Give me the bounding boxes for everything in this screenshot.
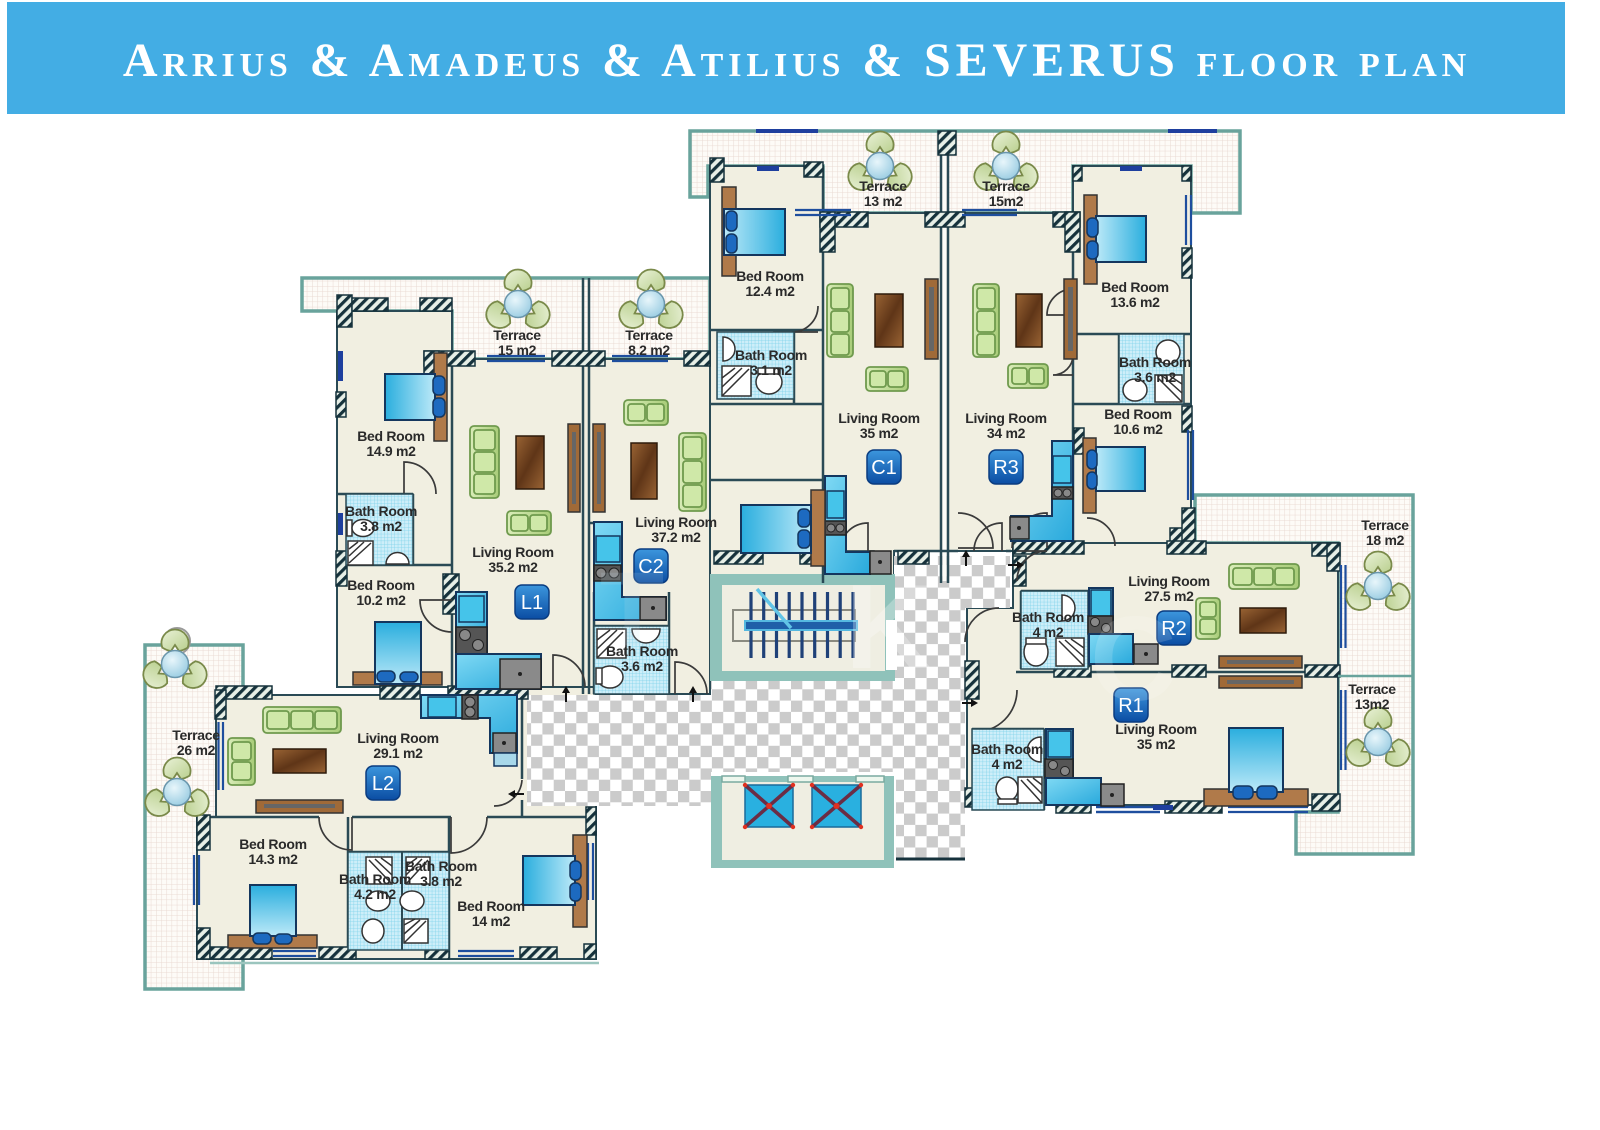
svg-text:Bed Room: Bed Room <box>347 577 415 593</box>
svg-text:34 m2: 34 m2 <box>987 425 1026 441</box>
svg-text:Terrace: Terrace <box>1348 681 1396 697</box>
svg-text:14.3 m2: 14.3 m2 <box>248 851 298 867</box>
svg-text:3.8 m2: 3.8 m2 <box>360 518 402 534</box>
svg-text:C1: C1 <box>871 457 897 479</box>
svg-text:Bed Room: Bed Room <box>239 836 307 852</box>
svg-text:Living Room: Living Room <box>472 544 553 560</box>
svg-text:Terrace: Terrace <box>982 178 1030 194</box>
svg-text:Terrace: Terrace <box>493 327 541 343</box>
svg-text:L1: L1 <box>521 592 543 614</box>
svg-text:Living Room: Living Room <box>838 410 919 426</box>
svg-text:14.9 m2: 14.9 m2 <box>366 443 416 459</box>
svg-text:Bed Room: Bed Room <box>1101 279 1169 295</box>
svg-text:13 m2: 13 m2 <box>864 193 903 209</box>
svg-text:4 m2: 4 m2 <box>992 756 1023 772</box>
svg-text:Bath Room: Bath Room <box>345 503 417 519</box>
svg-text:37.2 m2: 37.2 m2 <box>651 529 701 545</box>
svg-text:3.6 m2: 3.6 m2 <box>1134 369 1176 385</box>
svg-text:18 m2: 18 m2 <box>1366 532 1405 548</box>
svg-text:3.1 m2: 3.1 m2 <box>750 362 792 378</box>
svg-text:Bed Room: Bed Room <box>1104 406 1172 422</box>
svg-text:Bed Room: Bed Room <box>357 428 425 444</box>
svg-text:35.2 m2: 35.2 m2 <box>488 559 538 575</box>
svg-text:26 m2: 26 m2 <box>177 742 216 758</box>
svg-text:Terrace: Terrace <box>1361 517 1409 533</box>
svg-text:K: K <box>845 560 932 694</box>
svg-text:4 m2: 4 m2 <box>1033 624 1064 640</box>
svg-text:Living Room: Living Room <box>357 730 438 746</box>
svg-text:Living Room: Living Room <box>965 410 1046 426</box>
svg-text:C: C <box>1090 592 1177 726</box>
svg-text:35 m2: 35 m2 <box>1137 736 1176 752</box>
svg-text:Bath Room: Bath Room <box>735 347 807 363</box>
svg-text:Living Room: Living Room <box>635 514 716 530</box>
svg-text:Bed Room: Bed Room <box>457 898 525 914</box>
svg-text:14 m2: 14 m2 <box>472 913 511 929</box>
svg-text:Bed Room: Bed Room <box>736 268 804 284</box>
svg-text:Bath Room: Bath Room <box>339 871 411 887</box>
svg-text:Terrace: Terrace <box>625 327 673 343</box>
svg-text:Arrius & Amadeus & Atilius & S: Arrius & Amadeus & Atilius & SEVERUS flo… <box>123 34 1471 87</box>
svg-text:Bath Room: Bath Room <box>971 741 1043 757</box>
svg-text:Bath Room: Bath Room <box>405 858 477 874</box>
svg-text:3.8 m2: 3.8 m2 <box>420 873 462 889</box>
svg-text:Bath Room: Bath Room <box>1012 609 1084 625</box>
svg-text:Bath Room: Bath Room <box>1119 354 1191 370</box>
svg-text:10.6 m2: 10.6 m2 <box>1113 421 1163 437</box>
svg-text:R3: R3 <box>993 457 1019 479</box>
svg-text:35 m2: 35 m2 <box>860 425 899 441</box>
svg-text:29.1 m2: 29.1 m2 <box>373 745 423 761</box>
svg-text:Terrace: Terrace <box>859 178 907 194</box>
svg-text:13m2: 13m2 <box>1355 696 1390 712</box>
svg-text:12.4 m2: 12.4 m2 <box>745 283 795 299</box>
svg-text:L2: L2 <box>372 773 394 795</box>
svg-text:15 m2: 15 m2 <box>498 342 537 358</box>
svg-text:T: T <box>600 551 664 668</box>
svg-text:8.2 m2: 8.2 m2 <box>628 342 670 358</box>
svg-text:4.2 m2: 4.2 m2 <box>354 886 396 902</box>
svg-text:10.2 m2: 10.2 m2 <box>356 592 406 608</box>
svg-text:Living Room: Living Room <box>1128 573 1209 589</box>
svg-text:13.6 m2: 13.6 m2 <box>1110 294 1160 310</box>
svg-text:15m2: 15m2 <box>989 193 1024 209</box>
svg-text:Terrace: Terrace <box>172 727 220 743</box>
